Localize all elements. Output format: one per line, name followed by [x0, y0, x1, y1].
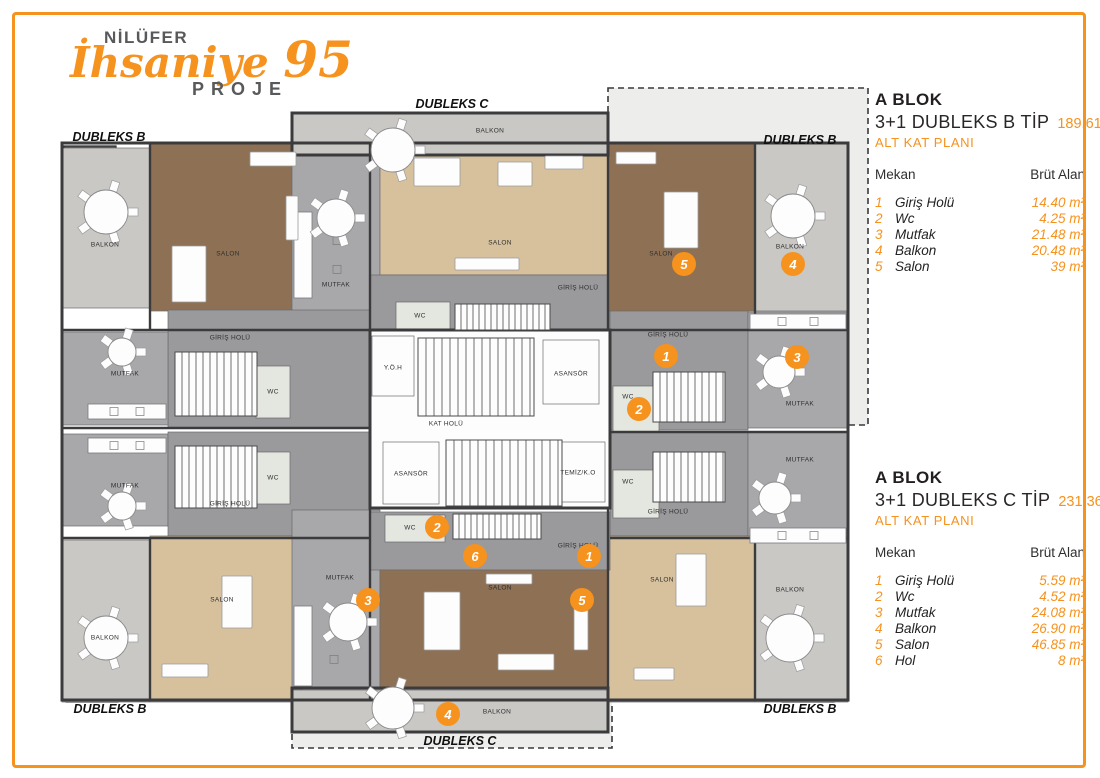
- area-row: 4Balkon26.90 m²: [875, 621, 1085, 637]
- table-header: Mekan Brüt Alan: [875, 545, 1085, 560]
- room-name: Giriş Holü: [888, 573, 954, 589]
- room-label-wc-bl: WC: [267, 475, 278, 482]
- chair: [355, 214, 365, 222]
- kitchen-counter: [88, 404, 166, 419]
- stairs: [455, 304, 550, 330]
- kitchen-counter: [88, 438, 166, 453]
- room-name: Salon: [888, 259, 930, 275]
- room-name: Wc: [888, 211, 915, 227]
- room-area: 8 m²: [1058, 653, 1085, 669]
- room-label-hol-tc: GİRİŞ HOLÜ: [558, 283, 599, 292]
- room-number: 4: [875, 243, 888, 259]
- area-row: 4Balkon20.48 m²: [875, 243, 1085, 259]
- type-area: 189.61m²: [1049, 116, 1100, 132]
- furniture: [486, 574, 532, 584]
- room-label-balkon-bc: BALKON: [483, 709, 511, 716]
- kitchen-counter: [750, 528, 846, 543]
- furniture: [162, 664, 208, 677]
- room-name: Wc: [888, 589, 915, 605]
- col-room: Mekan: [875, 167, 916, 182]
- type-label: 3+1 DUBLEKS B TİP: [875, 112, 1049, 133]
- area-row: 1Giriş Holü5.59 m²: [875, 573, 1085, 589]
- zone-label: DUBLEKS C: [424, 734, 498, 748]
- room-number: 1: [875, 195, 888, 211]
- room-label-balkon-bl: BALKON: [91, 635, 119, 642]
- type-label: 3+1 DUBLEKS C TİP: [875, 490, 1050, 511]
- type-title-row: 3+1 DUBLEKS B TİP 189.61m²: [875, 112, 1085, 133]
- room-label-temiz-ko: TEMİZ/K.O: [560, 468, 595, 477]
- marker-number: 5: [578, 593, 586, 608]
- furniture: [286, 196, 298, 240]
- block-title: A BLOK: [875, 468, 1085, 488]
- room-label-mutfak-tc: MUTFAK: [322, 282, 351, 289]
- block-title: A BLOK: [875, 90, 1085, 110]
- room-label-yoh: Y.Ö.H: [384, 364, 402, 372]
- room-label-wc-bc: WC: [404, 525, 415, 532]
- zone-label: DUBLEKS B: [764, 133, 837, 147]
- room-balkon-tc: [292, 113, 608, 155]
- kitchen-counter: [750, 314, 846, 329]
- type-area: 231.36 m²: [1050, 494, 1100, 510]
- room-label-salon-bc: SALON: [488, 585, 512, 592]
- zone-label: DUBLEKS B: [73, 130, 146, 144]
- info-panel-c-tip: A BLOK 3+1 DUBLEKS C TİP 231.36 m² ALT K…: [875, 468, 1085, 669]
- room-name: Mutfak: [888, 227, 936, 243]
- room-label-salon-br: SALON: [650, 577, 674, 584]
- round-table: [771, 194, 815, 238]
- round-table: [766, 614, 814, 662]
- room-number: 2: [875, 211, 888, 227]
- marker-number: 4: [443, 707, 452, 722]
- area-row: 3Mutfak24.08 m²: [875, 605, 1085, 621]
- marker-number: 1: [585, 549, 592, 564]
- room-area: 39 m²: [1050, 259, 1085, 275]
- room-area: 14.40 m²: [1032, 195, 1085, 211]
- room-area: 46.85 m²: [1032, 637, 1085, 653]
- furniture: [250, 152, 296, 166]
- chair: [791, 494, 801, 502]
- furniture: [424, 592, 460, 650]
- room-number: 3: [875, 227, 888, 243]
- room-label-balkon-br: BALKON: [776, 587, 804, 594]
- marker-number: 2: [432, 520, 441, 535]
- room-area: 20.48 m²: [1032, 243, 1085, 259]
- room-area: 4.25 m²: [1039, 211, 1085, 227]
- room-name: Balkon: [888, 621, 936, 637]
- furniture: [545, 156, 583, 169]
- room-label-mutfak-br: MUTFAK: [786, 457, 815, 464]
- plan-level-label: ALT KAT PLANI: [875, 513, 1085, 528]
- area-row: 1Giriş Holü14.40 m²: [875, 195, 1085, 211]
- type-title-row: 3+1 DUBLEKS C TİP 231.36 m²: [875, 490, 1085, 511]
- round-table: [317, 199, 355, 237]
- furniture: [498, 162, 532, 186]
- room-area: 5.59 m²: [1039, 573, 1085, 589]
- stairs: [653, 452, 725, 502]
- room-number: 5: [875, 259, 888, 275]
- chair: [814, 634, 824, 642]
- marker-number: 5: [680, 257, 688, 272]
- col-area: Brüt Alan: [1030, 167, 1085, 182]
- furniture: [498, 654, 554, 670]
- room-label-giris-tr: GİRİŞ HOLÜ: [648, 330, 689, 339]
- chair: [136, 502, 146, 510]
- marker-number: 3: [364, 593, 372, 608]
- area-row: 6Hol8 m²: [875, 653, 1085, 669]
- round-table: [759, 482, 791, 514]
- kitchen-counter: [294, 606, 312, 686]
- room-label-wc-tc: WC: [414, 313, 425, 320]
- area-row: 2Wc4.25 m²: [875, 211, 1085, 227]
- chair: [128, 634, 138, 642]
- col-area: Brüt Alan: [1030, 545, 1085, 560]
- chair: [367, 618, 377, 626]
- round-table: [108, 338, 136, 366]
- room-label-salon-bl: SALON: [210, 597, 234, 604]
- room-label-balkon-tl: BALKON: [91, 242, 119, 249]
- area-row: 2Wc4.52 m²: [875, 589, 1085, 605]
- room-name: Hol: [888, 653, 915, 669]
- round-table: [372, 687, 414, 729]
- room-number: 4: [875, 621, 888, 637]
- room-name: Balkon: [888, 243, 936, 259]
- room-label-salon-tl: SALON: [216, 251, 240, 258]
- area-row: 3Mutfak21.48 m²: [875, 227, 1085, 243]
- area-row: 5Salon46.85 m²: [875, 637, 1085, 653]
- room-label-salon-tr: SALON: [649, 251, 673, 258]
- chair: [414, 704, 424, 712]
- area-row: 5Salon39 m²: [875, 259, 1085, 275]
- chair: [815, 212, 825, 220]
- zone-label: DUBLEKS B: [764, 702, 837, 716]
- area-table: 1Giriş Holü5.59 m²2Wc4.52 m²3Mutfak24.08…: [875, 573, 1085, 669]
- room-label-mutfak-left-bot: MUTFAK: [111, 483, 140, 490]
- table-header: Mekan Brüt Alan: [875, 167, 1085, 182]
- furniture: [676, 554, 706, 606]
- room-label-giris-tl: GİRİŞ HOLÜ: [210, 333, 251, 342]
- logo-number: 95: [283, 30, 353, 89]
- plan-level-label: ALT KAT PLANI: [875, 135, 1085, 150]
- furniture: [664, 192, 698, 248]
- room-label-balkon-tr: BALKON: [776, 244, 804, 251]
- room-label-giris-bl: GİRİŞ HOLÜ: [210, 499, 251, 508]
- room-name: Giriş Holü: [888, 195, 954, 211]
- chair: [136, 348, 146, 356]
- room-name: Mutfak: [888, 605, 936, 621]
- room-area: 26.90 m²: [1032, 621, 1085, 637]
- furniture: [455, 258, 519, 270]
- area-table: 1Giriş Holü14.40 m²2Wc4.25 m²3Mutfak21.4…: [875, 195, 1085, 275]
- zone-label: DUBLEKS C: [416, 97, 490, 111]
- room-label-wc-br: WC: [622, 479, 633, 486]
- round-table: [371, 128, 415, 172]
- round-table: [84, 190, 128, 234]
- marker-number: 1: [662, 349, 669, 364]
- stairs: [446, 440, 562, 506]
- furniture: [172, 246, 206, 302]
- stairs: [653, 372, 725, 422]
- room-label-asansor-bottom: ASANSÖR: [394, 470, 428, 478]
- room-label-giris-br: GİRİŞ HOLÜ: [648, 507, 689, 516]
- room-area: 4.52 m²: [1039, 589, 1085, 605]
- col-room: Mekan: [875, 545, 916, 560]
- marker-number: 2: [634, 402, 643, 417]
- room-area: 21.48 m²: [1032, 227, 1085, 243]
- stairs: [453, 514, 541, 539]
- marker-number: 3: [793, 350, 801, 365]
- room-label-balkon-tc: BALKON: [476, 128, 504, 135]
- stairs: [418, 338, 534, 416]
- room-label-mutfak-left-top: MUTFAK: [111, 371, 140, 378]
- room-name: Salon: [888, 637, 930, 653]
- room-label-kat-holu: KAT HOLÜ: [429, 420, 463, 428]
- furniture: [616, 152, 656, 164]
- room-number: 3: [875, 605, 888, 621]
- room-number: 6: [875, 653, 888, 669]
- room-number: 2: [875, 589, 888, 605]
- info-panel-b-tip: A BLOK 3+1 DUBLEKS B TİP 189.61m² ALT KA…: [875, 90, 1085, 275]
- furniture: [574, 606, 588, 650]
- chair: [795, 368, 805, 376]
- marker-number: 4: [788, 257, 797, 272]
- furniture: [634, 668, 674, 680]
- furniture: [414, 158, 460, 186]
- room-area: 24.08 m²: [1032, 605, 1085, 621]
- chair: [415, 146, 425, 154]
- marker-number: 6: [471, 549, 479, 564]
- room-label-wc-tl: WC: [267, 389, 278, 396]
- chair: [128, 208, 138, 216]
- room-label-mutfak-tr: MUTFAK: [786, 401, 815, 408]
- logo: NİLÜFER İhsaniye 95 PROJE: [70, 28, 288, 100]
- room-label-salon-tc: SALON: [488, 240, 512, 247]
- room-number: 5: [875, 637, 888, 653]
- logo-script: İhsaniye 95: [70, 40, 288, 83]
- round-table: [108, 492, 136, 520]
- zone-label: DUBLEKS B: [74, 702, 147, 716]
- room-number: 1: [875, 573, 888, 589]
- room-label-asansor-top: ASANSÖR: [554, 370, 588, 378]
- room-label-mutfak-bc: MUTFAK: [326, 575, 355, 582]
